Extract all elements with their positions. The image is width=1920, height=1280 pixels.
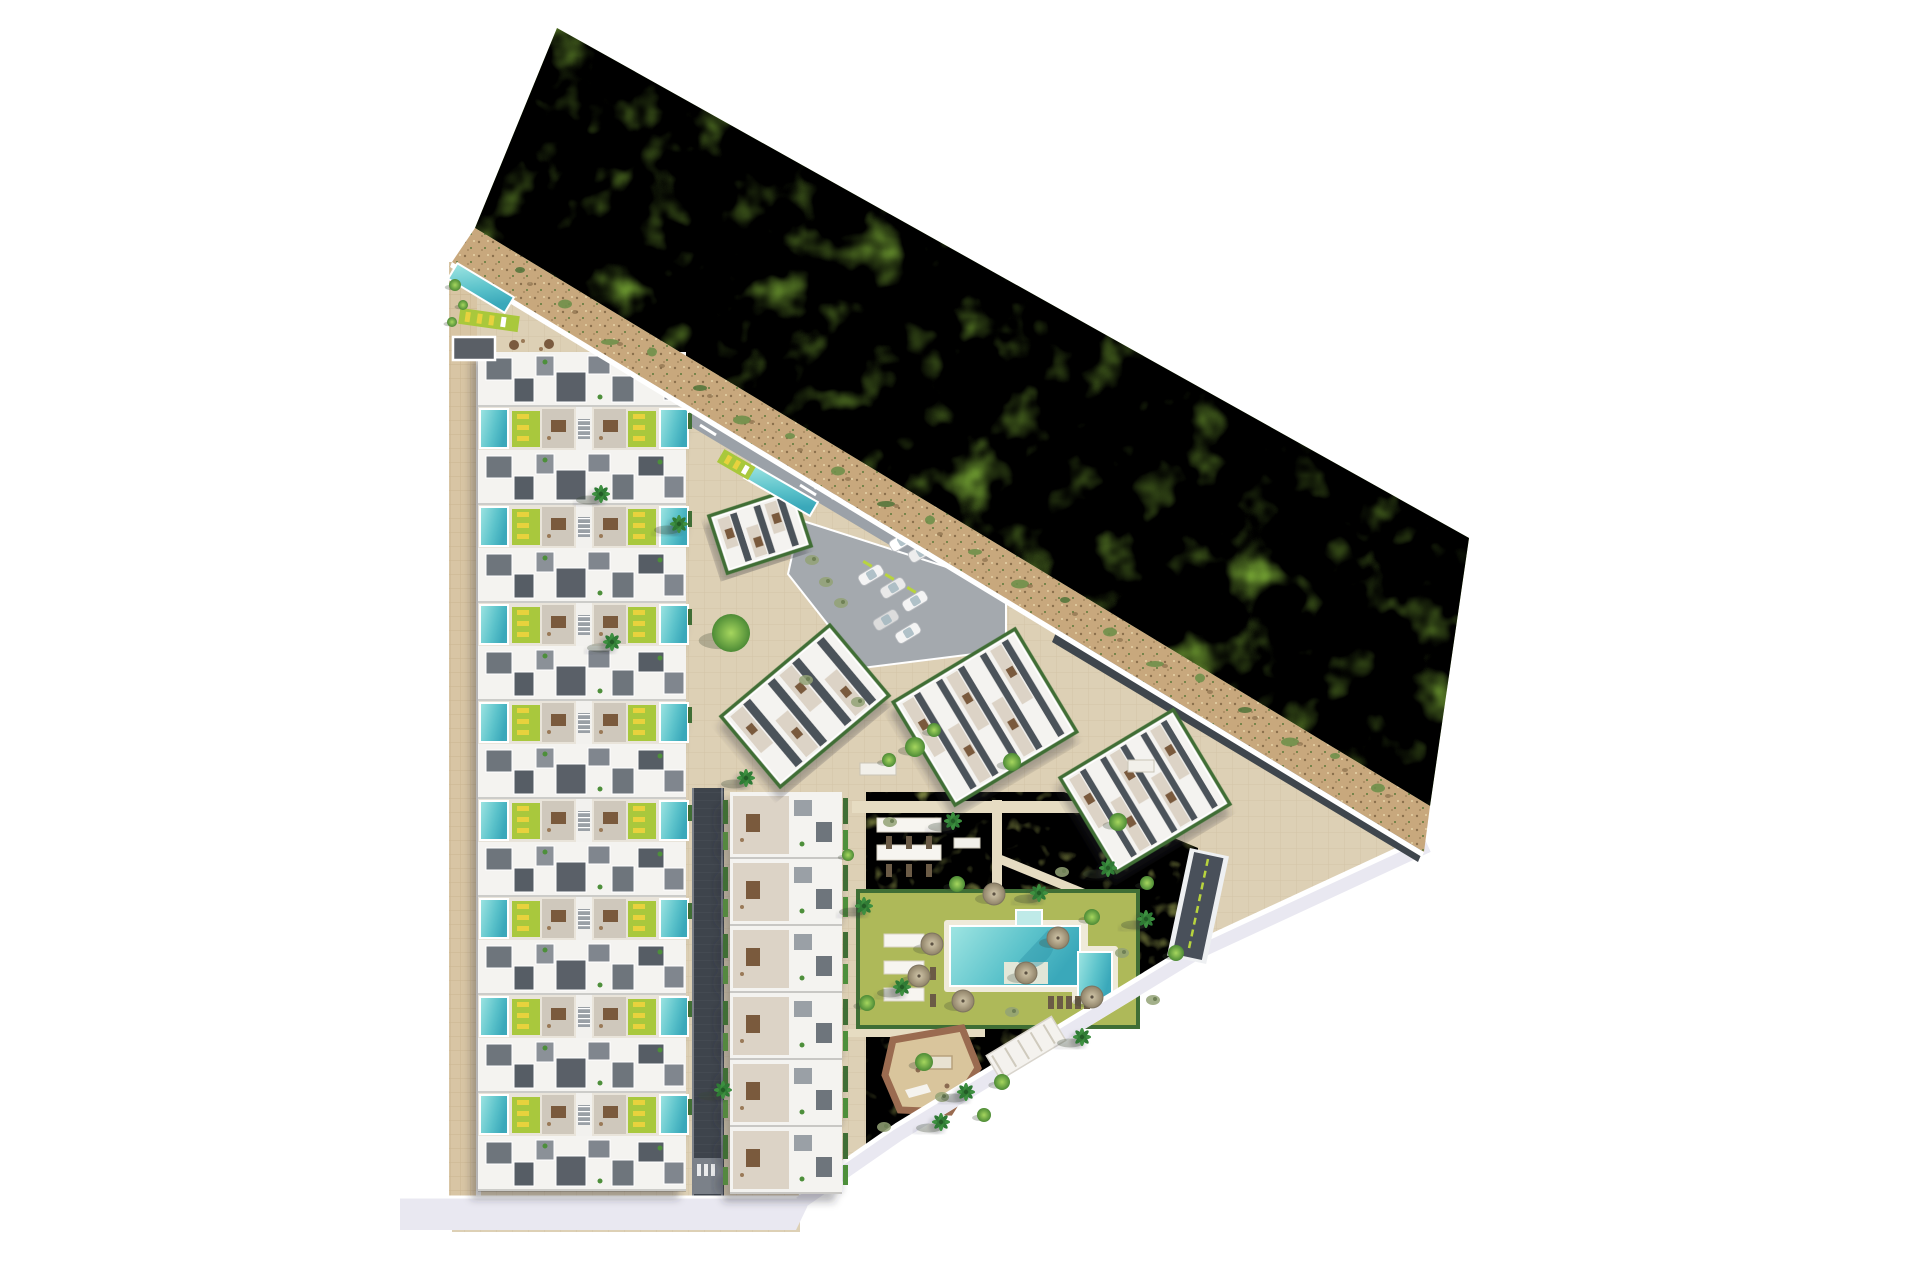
sun-lounger — [906, 864, 912, 877]
round-tree — [458, 300, 468, 310]
sun-lounger — [930, 994, 936, 1007]
round-tree — [1140, 876, 1154, 890]
townhouse-row — [478, 548, 692, 646]
townhouse-row — [478, 1038, 692, 1136]
round-tree — [449, 279, 461, 291]
apartment-unit — [723, 1060, 848, 1127]
masterplan-canvas — [0, 0, 1920, 1280]
site-plan-render — [0, 0, 1920, 1280]
townhouse-row — [478, 842, 692, 940]
shrub — [834, 598, 848, 608]
round-tree — [1084, 909, 1100, 925]
shrub — [851, 697, 865, 707]
round-tree — [1003, 753, 1021, 771]
round-tree — [712, 614, 750, 652]
townhouse-rows — [478, 352, 692, 1192]
round-tree — [447, 317, 457, 327]
shrub — [805, 555, 819, 565]
sun-lounger — [1048, 996, 1054, 1009]
sun-lounger — [886, 864, 892, 877]
middle-apartment-slab — [723, 792, 848, 1194]
round-tree — [915, 1053, 933, 1071]
round-tree — [977, 1108, 991, 1122]
bench — [1128, 760, 1154, 772]
sun-lounger — [926, 836, 932, 849]
round-tree — [994, 1074, 1010, 1090]
shrub — [1115, 948, 1129, 958]
shrub — [1146, 995, 1160, 1005]
apartment-unit — [723, 926, 848, 993]
round-tree — [1109, 813, 1127, 831]
left-sidewalk — [446, 262, 481, 1217]
round-tree — [1168, 945, 1184, 961]
apartment-unit — [723, 1127, 848, 1194]
townhouse-row — [478, 744, 692, 842]
shrub — [819, 577, 833, 587]
round-tree — [905, 737, 925, 757]
shrub — [799, 675, 813, 685]
apartment-unit — [723, 792, 848, 859]
apartment-unit — [723, 859, 848, 926]
sun-lounger — [886, 836, 892, 849]
townhouse-row — [478, 940, 692, 1038]
round-tree — [949, 876, 965, 892]
townhouse-row — [478, 646, 692, 744]
bench — [954, 838, 980, 848]
townhouse-row — [478, 1136, 686, 1192]
round-tree — [842, 849, 854, 861]
sun-lounger — [930, 967, 936, 980]
sun-lounger — [1057, 996, 1063, 1009]
sun-lounger — [926, 864, 932, 877]
shrub — [1055, 867, 1069, 877]
shrub — [883, 817, 897, 827]
south-road — [400, 1197, 812, 1230]
round-tree — [859, 995, 875, 1011]
round-tree — [927, 723, 941, 737]
internal-street — [692, 788, 724, 1197]
shrub — [1005, 1007, 1019, 1017]
round-tree — [882, 753, 896, 767]
sun-lounger — [906, 836, 912, 849]
sun-lounger — [1066, 996, 1072, 1009]
apartment-unit — [723, 993, 848, 1060]
shrub — [877, 1122, 891, 1132]
pergola — [453, 337, 495, 360]
